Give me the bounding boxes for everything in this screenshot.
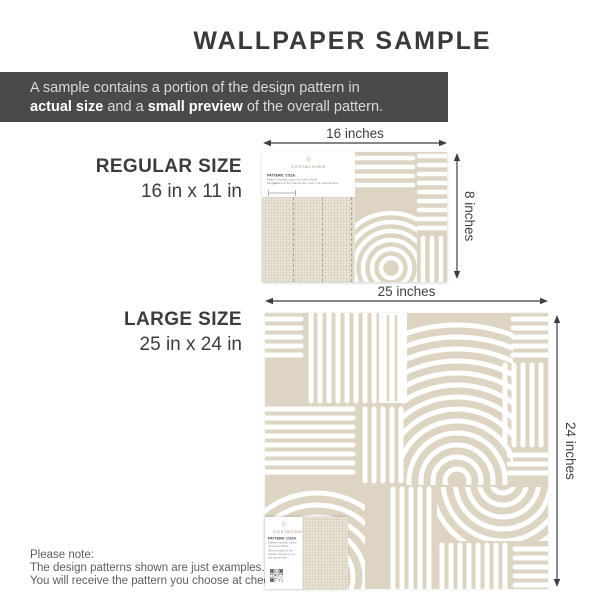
banner-bold-small-preview: small preview xyxy=(148,99,243,115)
regular-sample-card: COSTACOVER PATTERN: COZA Pattern repeats… xyxy=(262,152,447,282)
pattern-note-2: Mini swatch of the Panels 2pc: 24in x 9i… xyxy=(267,182,355,186)
footer-line1: Please note: xyxy=(30,549,294,562)
brand-leaf-icon xyxy=(305,157,312,163)
regular-size-dimensions: 16 in x 11 in xyxy=(0,181,242,203)
regular-width-arrow xyxy=(263,138,447,148)
wallpaper-sample-infographic: WALLPAPER SAMPLE A sample contains a por… xyxy=(0,0,600,600)
large-card-notes: PATTERN: COZA Pattern repeats every 24 i… xyxy=(268,537,299,561)
footer-line2: The design patterns shown are just examp… xyxy=(30,562,294,575)
banner-line2-mid: and a xyxy=(103,99,147,115)
large-size-dimensions: 25 in x 24 in xyxy=(0,334,242,356)
brand-name: COSTACOVER xyxy=(283,165,334,169)
regular-size-label: REGULAR SIZE 16 in x 11 in xyxy=(0,156,242,203)
banner-line1: A sample contains a portion of the desig… xyxy=(30,79,448,98)
large-width-arrow xyxy=(265,296,548,306)
regular-card-logo: COSTACOVER xyxy=(283,155,334,169)
pattern-title: PATTERN: COZA xyxy=(268,537,299,541)
regular-height-dimension-label: 8 inches xyxy=(462,153,477,279)
qr-code xyxy=(270,569,283,582)
regular-card-notes: PATTERN: COZA Pattern repeats every 24 i… xyxy=(267,174,355,186)
large-card-logo: COSTACOVER xyxy=(273,520,293,534)
footer-note: Please note: The design patterns shown a… xyxy=(30,549,294,589)
brand-name: COSTACOVER xyxy=(273,530,293,534)
pattern-note-1: Pattern repeats every 24 inches Wide xyxy=(268,542,299,549)
large-height-dimension-label: 24 inches xyxy=(563,315,578,587)
mini-preview-dimension-arrow xyxy=(268,190,296,196)
regular-actual-size-pattern xyxy=(355,152,447,282)
large-sample-info-card: COSTACOVER PATTERN: COZA Pattern repeats… xyxy=(265,517,347,589)
banner-line2-end: of the overall pattern. xyxy=(243,99,383,115)
regular-size-name: REGULAR SIZE xyxy=(0,156,242,178)
banner-bold-actual-size: actual size xyxy=(30,99,103,115)
large-size-label: LARGE SIZE 25 in x 24 in xyxy=(0,309,242,356)
footer-line3: You will receive the pattern you choose … xyxy=(30,575,294,588)
regular-height-arrow xyxy=(452,153,462,279)
panel-divider-dashed-line xyxy=(351,197,352,282)
mini-pattern-preview xyxy=(262,197,355,282)
mini-pattern-preview xyxy=(302,517,348,589)
page-title: WALLPAPER SAMPLE xyxy=(85,27,600,56)
panel-divider-dashed-line xyxy=(293,197,294,282)
description-banner: A sample contains a portion of the desig… xyxy=(0,72,448,122)
mini-preview-dimension-label: 24" xyxy=(272,182,277,186)
large-size-name: LARGE SIZE xyxy=(0,309,242,331)
large-height-arrow xyxy=(552,315,562,587)
brand-leaf-icon xyxy=(280,522,287,528)
panel-divider-dashed-line xyxy=(322,197,323,282)
pattern-note-2: Mini preview of the pattern shown is not… xyxy=(268,550,299,561)
pattern-title: PATTERN: COZA xyxy=(267,174,355,178)
banner-line2: actual size and a small preview of the o… xyxy=(30,98,448,117)
